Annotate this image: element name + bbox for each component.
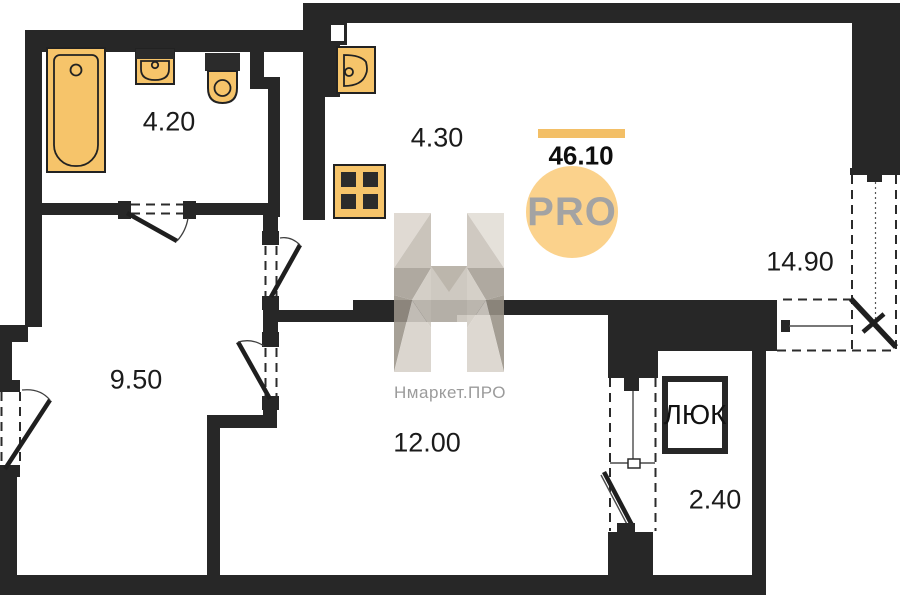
pro-logo-badge: PRO (526, 166, 618, 258)
area-label-wardrobe: 2.40 (689, 485, 742, 516)
watermark-caption: Нмаркет.ПРО (394, 383, 506, 403)
area-label-kitchen: 4.30 (411, 123, 464, 154)
hatch-box: ЛЮК (662, 376, 728, 454)
total-area-accent-bar (538, 129, 625, 138)
floor-plan-page: 4.20 4.30 9.50 12.00 14.90 2.40 46.10 PR… (0, 0, 900, 600)
area-label-hallway: 9.50 (110, 365, 163, 396)
watermark-h-logo (0, 0, 900, 600)
area-label-bedroom: 14.90 (766, 247, 834, 278)
pro-logo-text: PRO (527, 190, 617, 235)
area-label-bathroom: 4.20 (143, 107, 196, 138)
area-label-living-room: 12.00 (393, 428, 461, 459)
hatch-label: ЛЮК (664, 399, 727, 431)
